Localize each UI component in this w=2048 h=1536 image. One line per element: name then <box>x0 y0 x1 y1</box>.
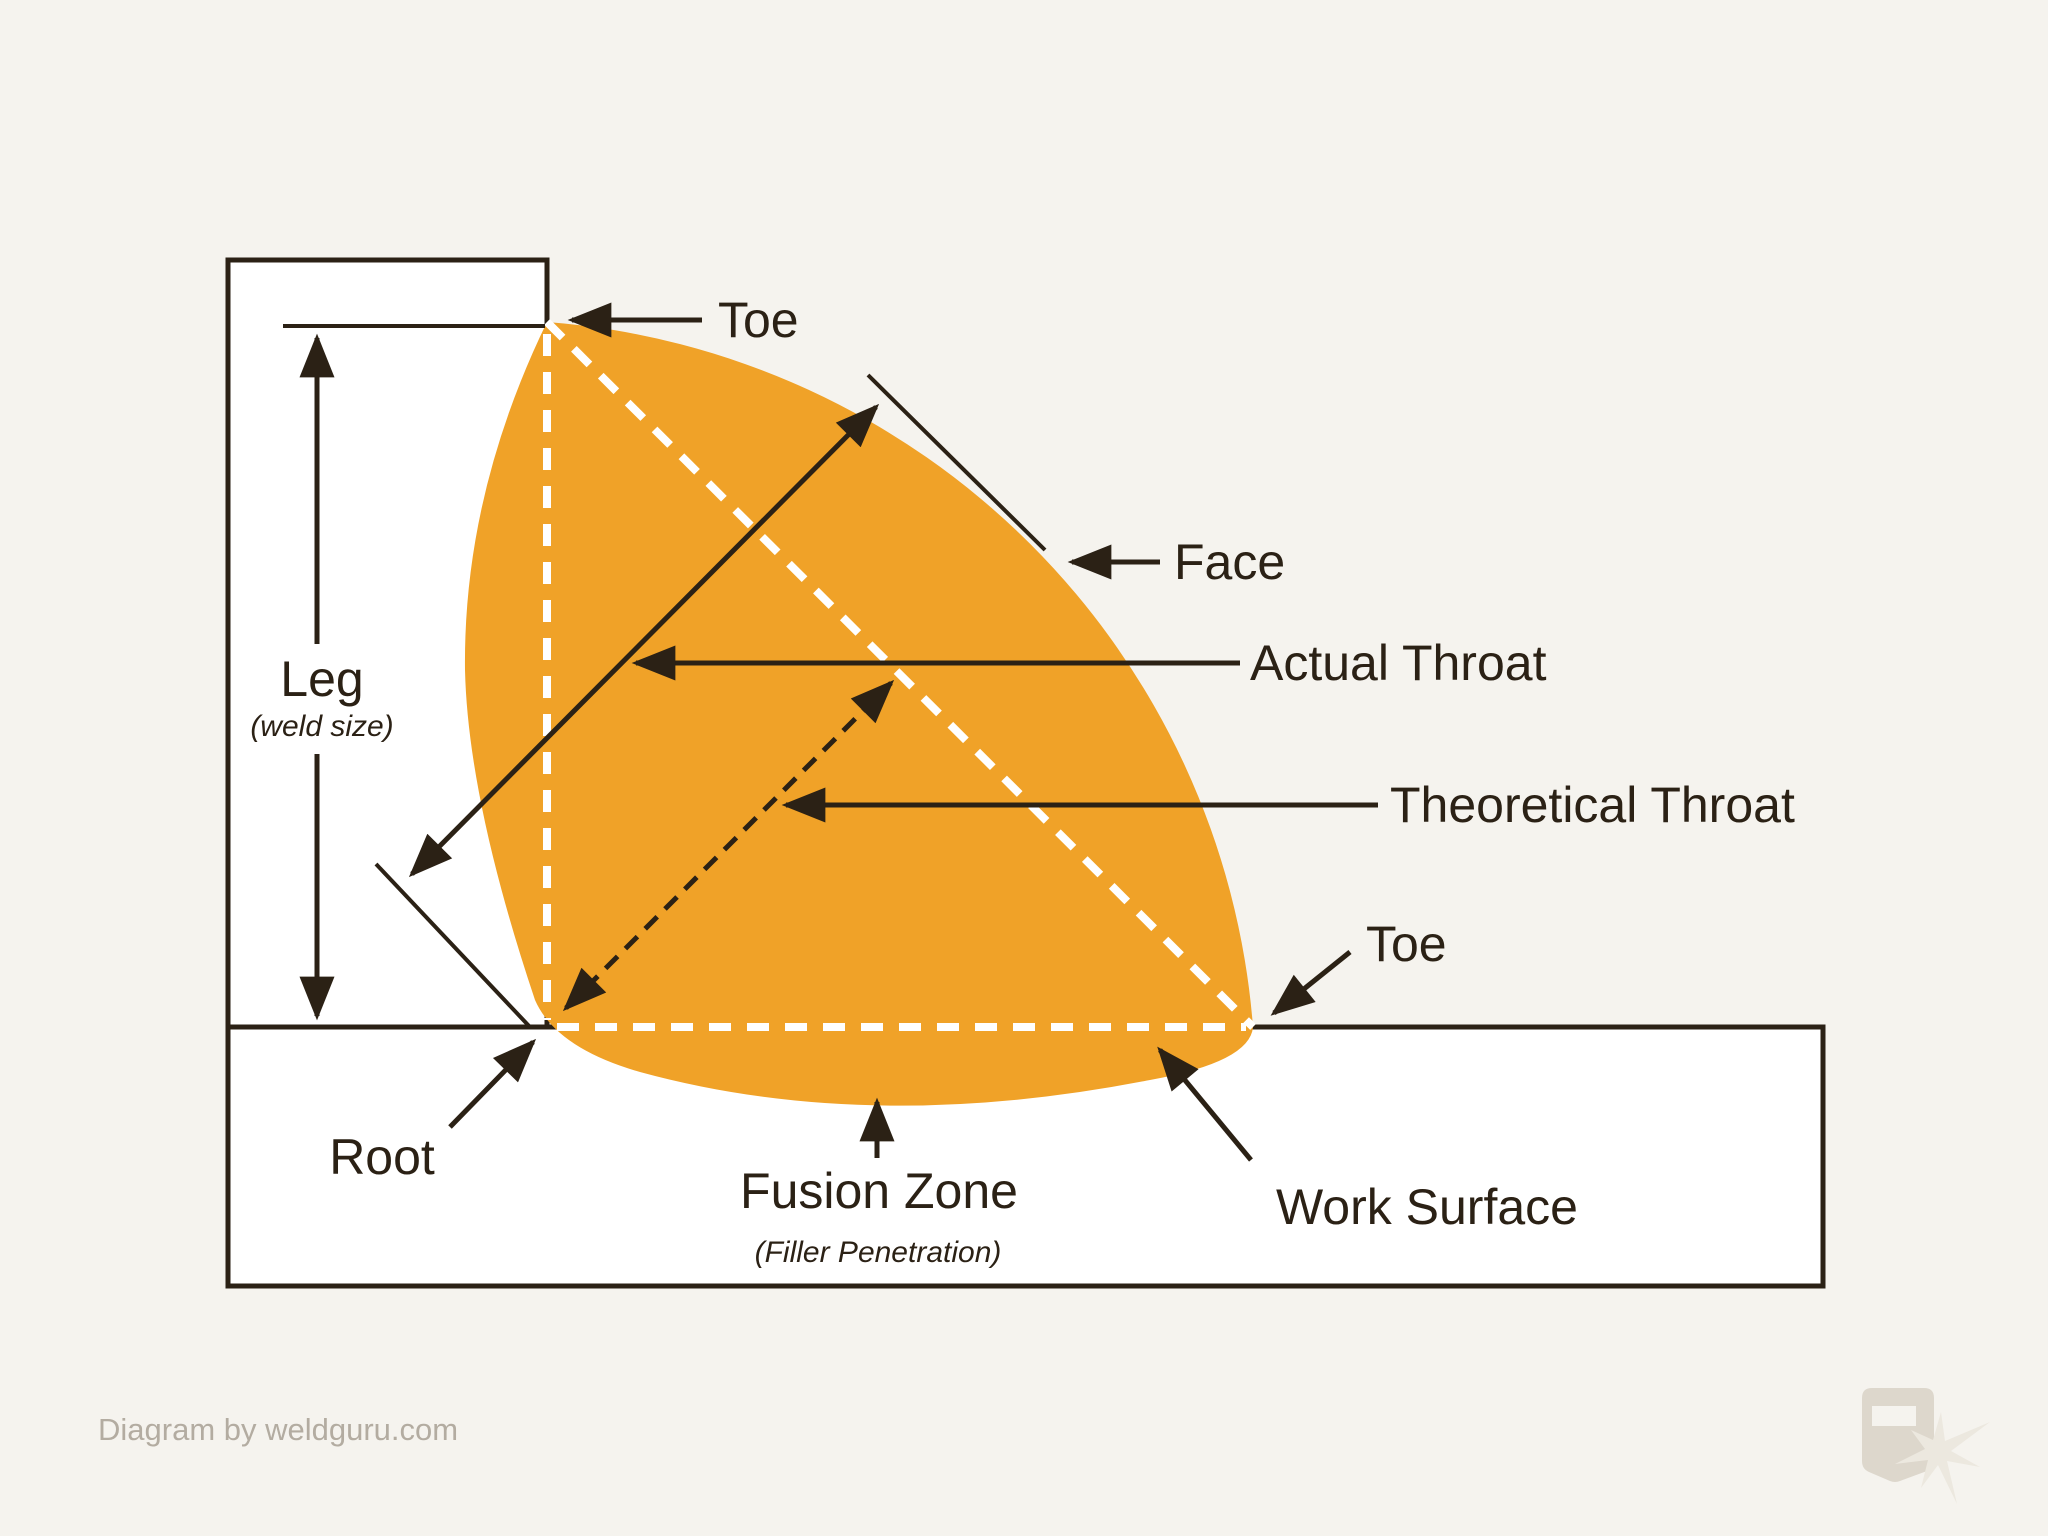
weld-bead <box>465 322 1253 1106</box>
fusion-zone-sublabel: (Filler Penetration) <box>755 1236 1002 1269</box>
helmet-visor-slot <box>1872 1406 1916 1426</box>
work-surface-label: Work Surface <box>1276 1179 1578 1235</box>
toe-top-label: Toe <box>718 292 799 348</box>
welding-helmet-icon <box>1862 1388 1934 1482</box>
toe-right-leader-arrow <box>1274 952 1350 1013</box>
theoretical-throat-label: Theoretical Throat <box>1390 777 1795 833</box>
weldguru-logo-icon <box>1862 1388 1990 1504</box>
actual-throat-label: Actual Throat <box>1250 635 1547 691</box>
leg-sublabel: (weld size) <box>250 710 393 743</box>
fillet-weld-diagram: Leg (weld size) Toe Face Actual Throat T… <box>0 0 2048 1536</box>
leg-label: Leg <box>280 651 363 707</box>
toe-right-label: Toe <box>1366 916 1447 972</box>
credit-text: Diagram by weldguru.com <box>98 1412 458 1447</box>
face-label: Face <box>1174 534 1285 590</box>
root-label: Root <box>329 1129 435 1185</box>
fusion-zone-label: Fusion Zone <box>740 1163 1018 1219</box>
